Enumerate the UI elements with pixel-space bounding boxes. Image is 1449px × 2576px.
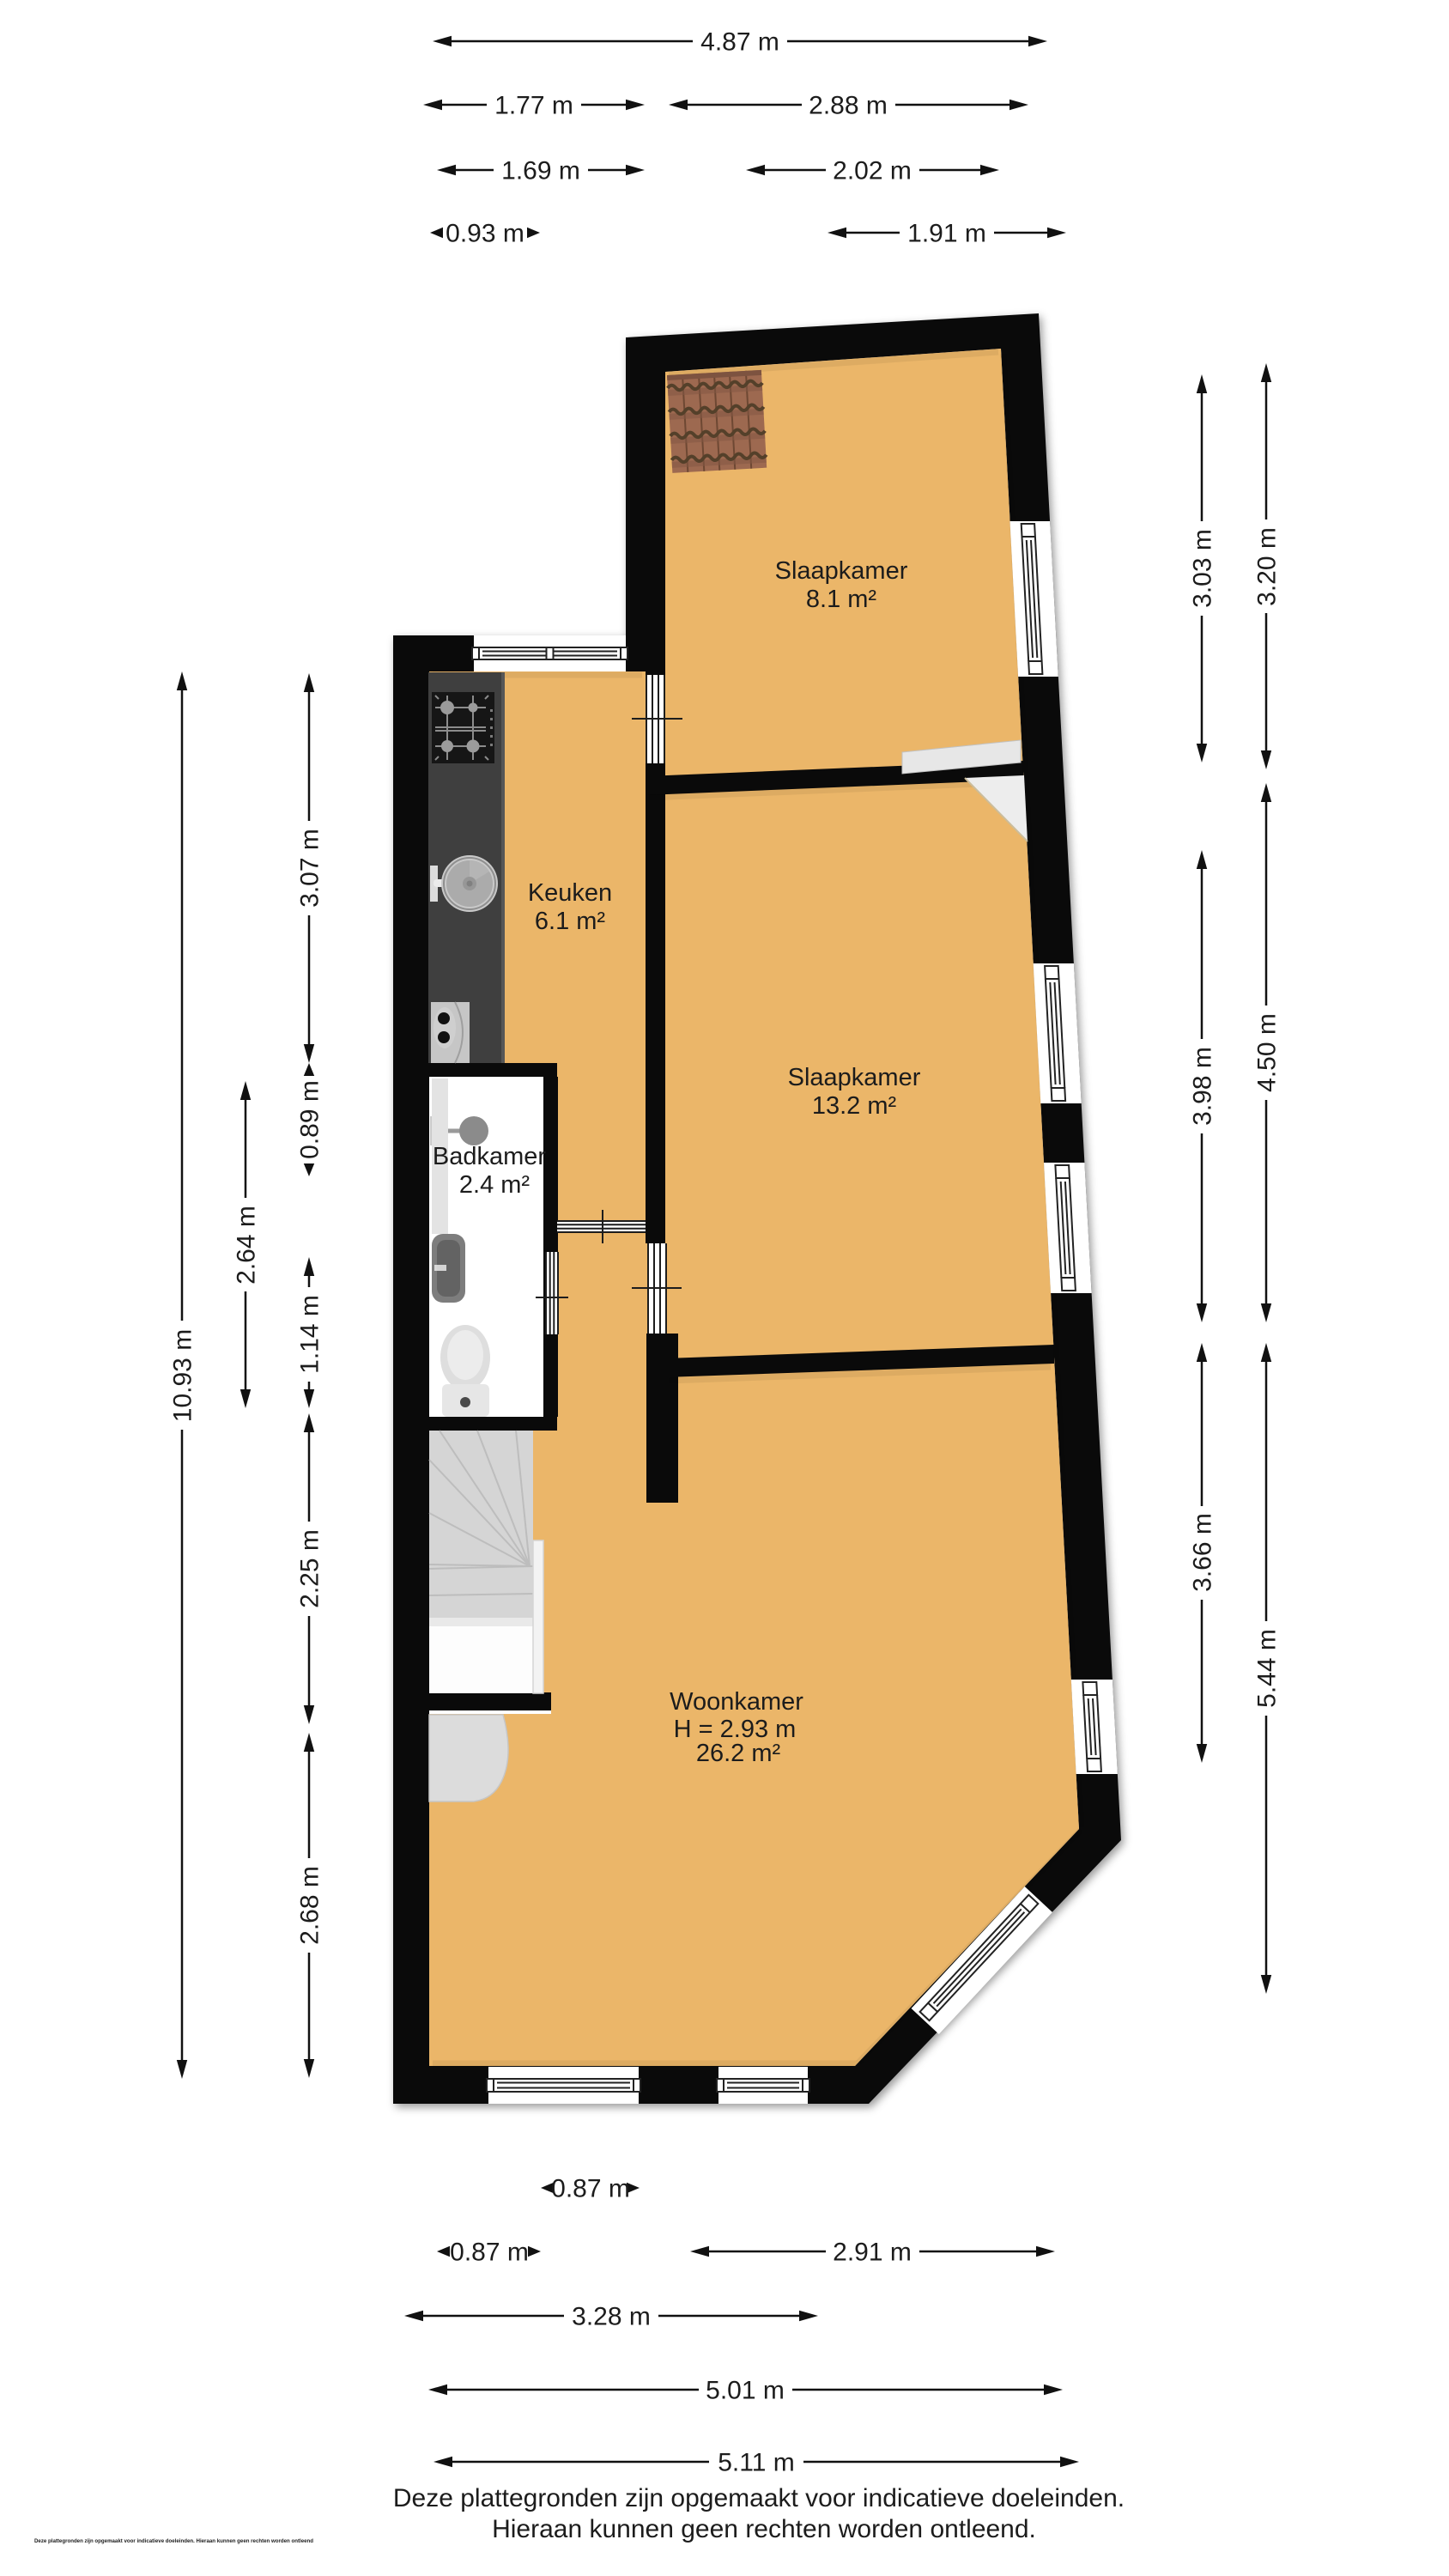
svg-text:1.14 m: 1.14 m (296, 1295, 324, 1374)
svg-text:0.89 m: 0.89 m (296, 1080, 324, 1159)
svg-text:5.44 m: 5.44 m (1253, 1629, 1282, 1708)
svg-text:3.98 m: 3.98 m (1189, 1047, 1217, 1126)
svg-text:4.87 m: 4.87 m (700, 28, 779, 57)
svg-text:10.93 m: 10.93 m (169, 1329, 197, 1422)
svg-text:0.87 m: 0.87 m (551, 2175, 630, 2203)
svg-text:3.66 m: 3.66 m (1189, 1513, 1217, 1592)
svg-text:5.01 m: 5.01 m (706, 2377, 785, 2405)
svg-text:Badkamer: Badkamer (433, 1143, 547, 1170)
svg-text:2.91 m: 2.91 m (833, 2239, 912, 2267)
svg-text:3.07 m: 3.07 m (296, 829, 324, 908)
svg-text:Keuken: Keuken (528, 879, 612, 907)
svg-text:0.87 m: 0.87 m (450, 2239, 529, 2267)
svg-text:2.88 m: 2.88 m (809, 92, 888, 120)
svg-text:2.64 m: 2.64 m (233, 1206, 261, 1285)
svg-text:Slaapkamer: Slaapkamer (775, 557, 908, 585)
svg-text:Slaapkamer: Slaapkamer (788, 1064, 921, 1091)
svg-text:3.03 m: 3.03 m (1189, 529, 1217, 608)
svg-text:4.50 m: 4.50 m (1253, 1013, 1282, 1092)
svg-text:1.77 m: 1.77 m (494, 92, 573, 120)
svg-text:8.1 m²: 8.1 m² (806, 586, 877, 613)
svg-text:2.4 m²: 2.4 m² (459, 1171, 530, 1199)
svg-text:1.69 m: 1.69 m (501, 157, 580, 185)
svg-text:Hieraan kunnen geen rechten wo: Hieraan kunnen geen rechten worden ontle… (492, 2515, 1036, 2543)
svg-text:3.28 m: 3.28 m (572, 2303, 651, 2331)
svg-text:2.68 m: 2.68 m (296, 1866, 324, 1945)
svg-text:Deze plattegronden zijn opgema: Deze plattegronden zijn opgemaakt voor i… (393, 2484, 1125, 2512)
svg-text:13.2 m²: 13.2 m² (812, 1092, 897, 1120)
svg-text:1.91 m: 1.91 m (907, 220, 986, 248)
svg-text:Woonkamer: Woonkamer (670, 1688, 803, 1716)
svg-text:2.25 m: 2.25 m (296, 1529, 324, 1608)
svg-text:26.2 m²: 26.2 m² (696, 1740, 781, 1767)
svg-text:2.02 m: 2.02 m (833, 157, 912, 185)
svg-text:5.11 m: 5.11 m (718, 2449, 795, 2477)
svg-text:3.20 m: 3.20 m (1253, 527, 1282, 606)
svg-text:0.93 m: 0.93 m (446, 220, 524, 248)
svg-text:6.1 m²: 6.1 m² (535, 908, 606, 935)
svg-text:Deze plattegronden zijn opgema: Deze plattegronden zijn opgemaakt voor i… (34, 2538, 313, 2544)
